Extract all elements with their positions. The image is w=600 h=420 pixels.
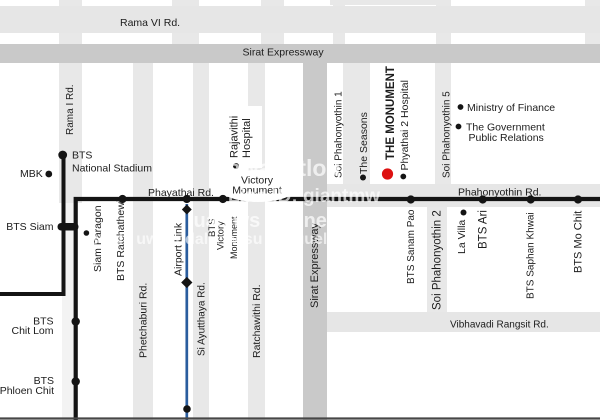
- svg-text:La Villa: La Villa: [456, 220, 468, 254]
- svg-text:Phayathai Rd.: Phayathai Rd.: [148, 187, 214, 199]
- svg-text:Si Ayutthaya Rd.: Si Ayutthaya Rd.: [197, 282, 208, 356]
- svg-text:MBK: MBK: [20, 168, 43, 180]
- svg-text:BTS Sanam Pao: BTS Sanam Pao: [406, 209, 417, 284]
- svg-text:Phyathai 2 Hospital: Phyathai 2 Hospital: [399, 80, 411, 170]
- svg-text:BTS Siam: BTS Siam: [6, 221, 54, 233]
- svg-text:awanstlou: awanstlou: [228, 155, 340, 181]
- svg-text:Sirat Expressway: Sirat Expressway: [243, 47, 325, 59]
- svg-text:BTS Mo Chit: BTS Mo Chit: [573, 211, 585, 273]
- svg-text:BTS Ari: BTS Ari: [478, 210, 490, 249]
- svg-text:Rajavithi: Rajavithi: [228, 116, 240, 158]
- svg-text:Rama VI Rd.: Rama VI Rd.: [120, 17, 180, 29]
- svg-text:National Stadium: National Stadium: [72, 163, 152, 175]
- svg-text:The Seasons: The Seasons: [358, 112, 370, 174]
- svg-text:Hospital: Hospital: [241, 118, 253, 158]
- svg-text:Soi Phahonyothin 2: Soi Phahonyothin 2: [431, 210, 443, 310]
- svg-text:su ds uw wudalu awsu lua uuela: su ds uw wudalu awsu lua uuelans ua: [90, 231, 378, 248]
- svg-text:BTS: BTS: [72, 150, 92, 162]
- svg-text:Chit Lom: Chit Lom: [11, 325, 53, 337]
- svg-text:iuaslws Phone 0655: iuaslws Phone 0655: [188, 210, 377, 232]
- svg-text:Vibhavadi Rangsit Rd.: Vibhavadi Rangsit Rd.: [450, 320, 549, 331]
- svg-text:Ratchawithi Rd.: Ratchawithi Rd.: [251, 284, 263, 358]
- svg-text:Rama I Rd.: Rama I Rd.: [65, 84, 76, 135]
- svg-text:BTS Saphan Khwai: BTS Saphan Khwai: [526, 212, 537, 299]
- svg-text:Public Relations: Public Relations: [469, 132, 544, 144]
- svg-text:Line ID: giantmw: Line ID: giantmw: [228, 186, 380, 207]
- svg-text:Phetchaburi Rd.: Phetchaburi Rd.: [138, 283, 150, 358]
- svg-text:THE MONUMENT: THE MONUMENT: [385, 66, 397, 160]
- svg-text:Phloen Chit: Phloen Chit: [0, 385, 54, 397]
- svg-text:Soi Phahonyothin 5: Soi Phahonyothin 5: [442, 91, 453, 178]
- svg-text:Ministry of Finance: Ministry of Finance: [467, 102, 555, 114]
